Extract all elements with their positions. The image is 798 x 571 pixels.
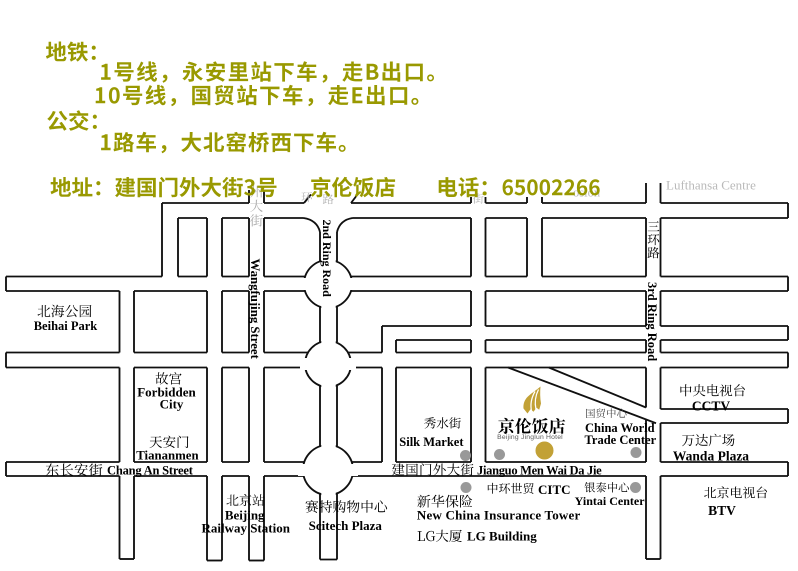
svg-text:Yintai Center: Yintai Center (575, 494, 646, 508)
svg-text:Tiananmen: Tiananmen (136, 449, 198, 463)
svg-text:3rd Ring Road: 3rd Ring Road (645, 282, 659, 361)
svg-text:City: City (160, 397, 184, 412)
svg-text:CITC: CITC (538, 482, 571, 497)
svg-text:Jianguo Men Wai Da Jie: Jianguo Men Wai Da Jie (477, 464, 602, 478)
svg-text:Wangfujing Street: Wangfujing Street (248, 259, 262, 360)
svg-text:Scitech Plaza: Scitech Plaza (309, 518, 383, 533)
svg-text:New China Insurance Tower: New China Insurance Tower (417, 508, 581, 523)
svg-text:Beijing Jinglun Hotel: Beijing Jinglun Hotel (497, 434, 563, 441)
svg-text:Wanda Plaza: Wanda Plaza (673, 449, 749, 464)
svg-text:Trade Center: Trade Center (585, 433, 657, 447)
svg-text:LG Building: LG Building (467, 529, 537, 544)
svg-text:Railway Station: Railway Station (201, 521, 290, 536)
svg-text:Lufthansa Centre: Lufthansa Centre (666, 178, 756, 193)
svg-text:Chang An Street: Chang An Street (107, 464, 194, 478)
svg-text:2nd Ring Road: 2nd Ring Road (320, 220, 334, 298)
svg-text:BTV: BTV (708, 503, 736, 518)
svg-text:Silk Market: Silk Market (399, 435, 464, 449)
svg-text:Beihai Park: Beihai Park (34, 319, 98, 333)
svg-text:CCTV: CCTV (692, 399, 731, 414)
